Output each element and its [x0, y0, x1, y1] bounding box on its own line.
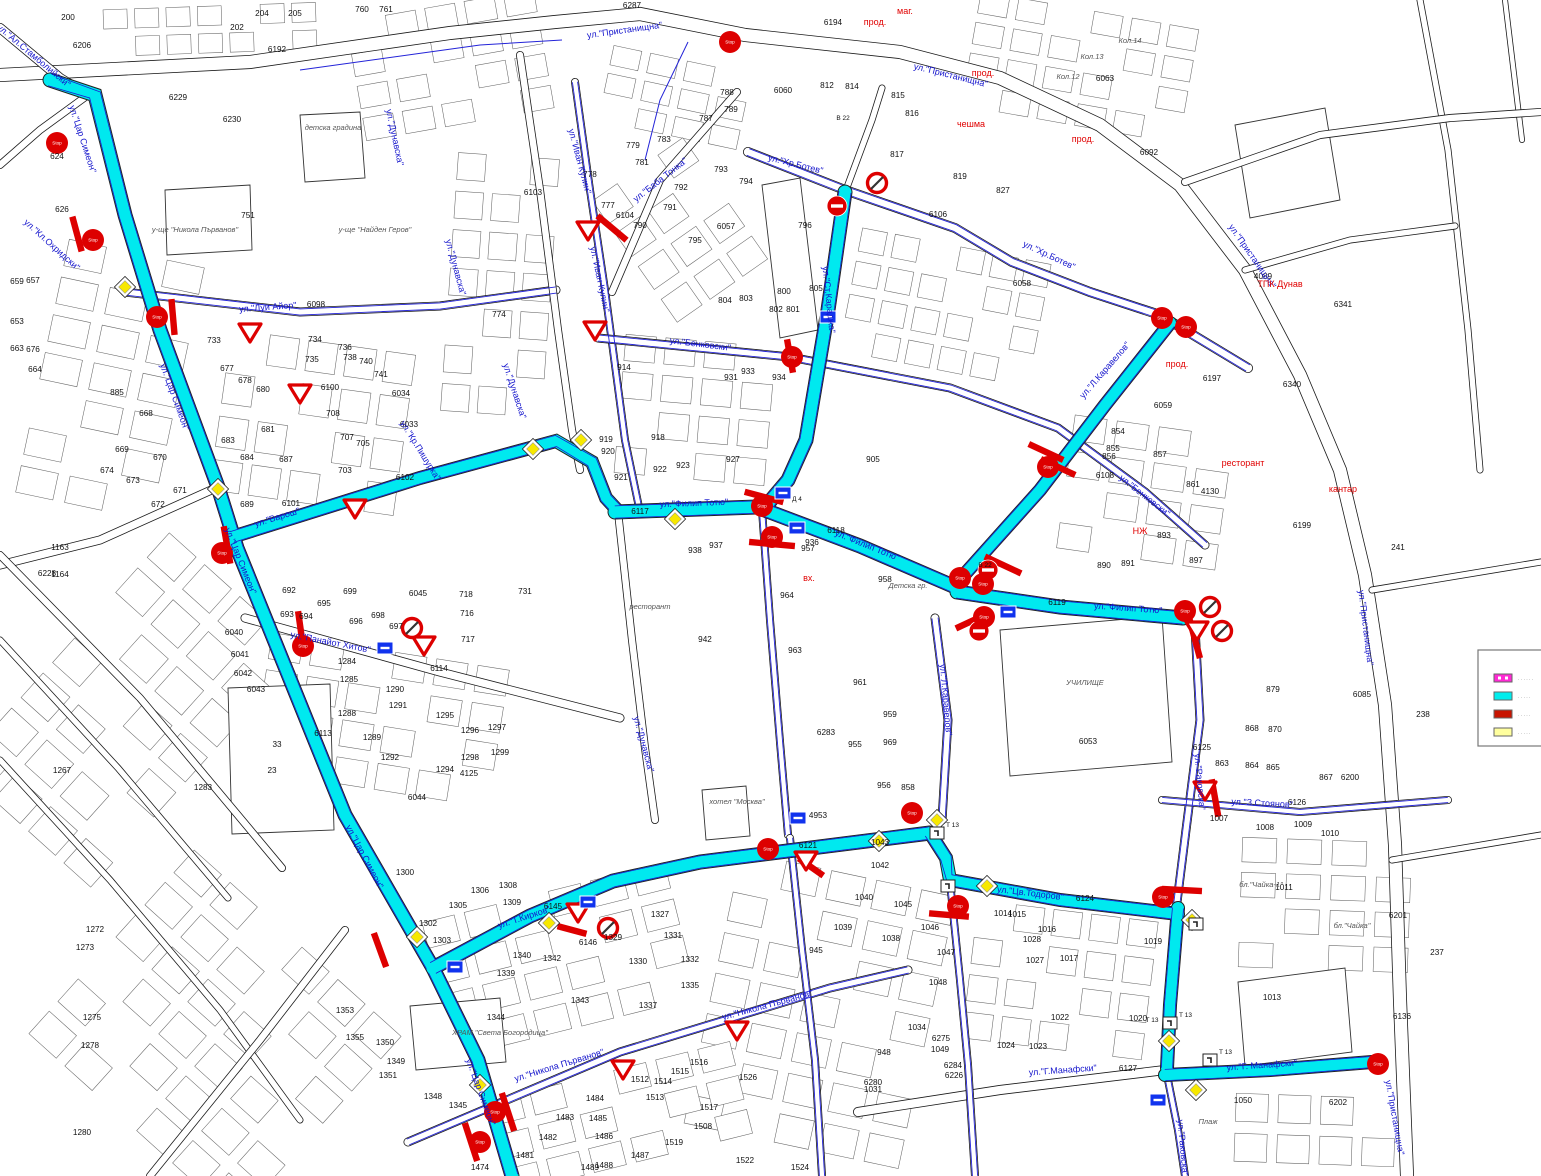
parcel-number: 777 [601, 201, 615, 210]
poi-label-red: ТПК Дунав [1257, 279, 1302, 289]
parcel-number: 1515 [671, 1067, 690, 1076]
parcel-number: 942 [698, 635, 712, 644]
parcel-number: 934 [772, 373, 786, 382]
parcel-number: 6106 [929, 210, 948, 219]
parcel-outline [1155, 86, 1187, 113]
parcel-outline [1151, 463, 1187, 493]
parcel-outline [396, 74, 430, 102]
parcel-number: 6230 [223, 115, 242, 124]
legend-item-label: · · · · · · [1518, 677, 1533, 682]
info-sign-glyph [793, 527, 802, 529]
parcel-number: 1524 [791, 1163, 810, 1172]
parcel-number: 927 [726, 455, 740, 464]
stop-sign-text: Stop [152, 315, 162, 320]
poi-label-gray: ресторант [628, 602, 670, 611]
parcel-outline [454, 191, 484, 220]
parcel-number: 4953 [809, 811, 828, 820]
parcel-number: 1027 [1026, 956, 1045, 965]
parcel-number: 241 [1391, 543, 1405, 552]
poi-label-red: прод. [972, 68, 994, 78]
parcel-number: 1289 [363, 733, 382, 742]
parcel-number: 6127 [1119, 1064, 1138, 1073]
parcel-outline [441, 383, 471, 412]
parcel-number: 1045 [894, 900, 913, 909]
parcel-number: 814 [845, 82, 859, 91]
parcel-number: 787 [699, 114, 713, 123]
sign-code-label: Д 4 [792, 496, 802, 503]
parcel-outline [337, 389, 371, 423]
parcel-number: 1290 [386, 685, 405, 694]
parcel-number: 1485 [589, 1114, 608, 1123]
parcel-number: 1297 [488, 723, 507, 732]
parcel-number: 914 [617, 363, 631, 372]
parcel-number: 202 [230, 23, 244, 32]
parcel-number: 663 [10, 344, 24, 353]
parcel-number: 921 [614, 473, 628, 482]
parcel-outline [357, 81, 391, 109]
parcel-number: 4125 [460, 769, 479, 778]
parcel-outline [1284, 909, 1319, 935]
poi-label-red: прод. [864, 17, 886, 27]
parcel-number: 707 [340, 433, 354, 442]
parcel-number: 1300 [396, 868, 415, 877]
parcel-number: 693 [280, 610, 294, 619]
info-sign-glyph [451, 966, 460, 968]
parcel-number: 905 [866, 455, 880, 464]
parcel-number: 920 [601, 447, 615, 456]
parcel-number: 698 [371, 611, 385, 620]
parcel-outline [442, 99, 476, 127]
parcel-outline [103, 9, 128, 29]
stop-sign-text: Stop [217, 551, 227, 556]
parcel-number: 781 [635, 158, 649, 167]
parcel-outline [1004, 979, 1036, 1009]
parcel-number: 692 [282, 586, 296, 595]
parcel-number: 1016 [1038, 925, 1057, 934]
parcel-number: 6284 [944, 1061, 963, 1070]
parcel-number: 802 [769, 305, 783, 314]
parcel-number: 6202 [1329, 1098, 1348, 1107]
parcel-number: 6108 [1096, 471, 1115, 480]
parcel-number: 937 [709, 541, 723, 550]
parcel-number: 1517 [700, 1103, 719, 1112]
parcel-outline [1057, 523, 1093, 553]
poi-label-gray: у-ще "Найден Геров" [338, 225, 412, 234]
parcel-number: 963 [788, 646, 802, 655]
parcel-number: 885 [110, 388, 124, 397]
parcel-number: 1331 [664, 931, 683, 940]
parcel-number: 6119 [1048, 598, 1066, 607]
parcel-number: 1344 [487, 1013, 506, 1022]
parcel-number: 890 [1097, 561, 1111, 570]
parcel-number: 669 [115, 445, 129, 454]
parcel-outline [971, 937, 1003, 967]
sign-code-label: В 22 [836, 115, 850, 122]
legend-item-label: · · · · · [1518, 695, 1531, 700]
parcel-number: 6280 [864, 1078, 883, 1087]
parcel-number: 1299 [491, 748, 510, 757]
parcel-number: 1486 [595, 1132, 614, 1141]
parcel-number: 6044 [408, 793, 427, 802]
parcel-outline [852, 261, 881, 289]
parcel-number: 1343 [571, 996, 590, 1005]
stop-sign-text: Stop [757, 504, 767, 509]
parcel-outline [943, 313, 972, 341]
parcel-number: 794 [739, 177, 753, 186]
parcel-number: 6275 [932, 1034, 951, 1043]
parcel-outline [167, 34, 192, 54]
parcel-number: 856 [1102, 452, 1116, 461]
poi-label-red: кантар [1329, 484, 1357, 494]
bus-stop-sign-icon [930, 827, 944, 839]
stop-sign-text: Stop [953, 904, 963, 909]
parcel-number: 6206 [73, 41, 92, 50]
poi-label-gray: Кол.12 [1056, 72, 1080, 81]
parcel-number: 1484 [586, 1094, 605, 1103]
parcel-number: 6057 [717, 222, 736, 231]
stop-sign-text: Stop [1157, 316, 1167, 321]
parcel-number: 959 [883, 710, 897, 719]
parcel-number: 716 [460, 609, 474, 618]
parcel-number: 734 [308, 335, 322, 344]
parcel-outline [370, 438, 404, 472]
parcel-number: 1519 [665, 1138, 684, 1147]
building-outline [1238, 968, 1352, 1066]
parcel-number: 659 [10, 277, 24, 286]
parcel-number: 1329 [604, 933, 623, 942]
parcel-number: 6058 [1013, 279, 1032, 288]
parcel-number: 697 [389, 622, 403, 631]
parcel-number: 1283 [194, 783, 213, 792]
parcel-number: 6199 [1293, 521, 1312, 530]
parcel-number: 1483 [556, 1113, 575, 1122]
poi-label-red: НЖ [1133, 526, 1148, 536]
parcel-number: 919 [599, 435, 613, 444]
parcel-outline [1089, 914, 1121, 944]
parcel-outline [1161, 55, 1193, 82]
poi-label-gray: УЧИЛИЩЕ [1065, 678, 1105, 687]
parcel-number: 681 [261, 425, 275, 434]
parcel-outline [1079, 988, 1111, 1018]
parcel-number: 1303 [433, 936, 452, 945]
parcel-number: 1047 [937, 948, 956, 957]
parcel-number: 815 [891, 91, 905, 100]
legend-swatch-dash [1498, 677, 1501, 680]
legend-swatch [1494, 674, 1512, 682]
parcel-number: 791 [663, 203, 677, 212]
parcel-number: 1306 [471, 886, 490, 895]
parcel-outline [1278, 1095, 1311, 1124]
parcel-number: 1337 [639, 1001, 658, 1010]
poi-label-gray: Плаж [1199, 1117, 1219, 1126]
parcel-number: 1013 [1263, 993, 1282, 1002]
parcel-number: 1294 [436, 765, 455, 774]
parcel-number: 854 [1111, 427, 1125, 436]
legend-swatch [1494, 692, 1512, 700]
parcel-number: 717 [461, 635, 475, 644]
parcel-number: 708 [326, 409, 340, 418]
parcel-number: 803 [739, 294, 753, 303]
bus-stop-sign-icon [1163, 1017, 1177, 1029]
parcel-number: 1163 [51, 543, 69, 552]
parcel-outline [197, 6, 222, 26]
parcel-number: 1019 [1144, 937, 1163, 946]
parcel-number: 626 [55, 205, 69, 214]
parcel-outline [1009, 326, 1038, 354]
parcel-number: 1038 [882, 934, 901, 943]
parcel-number: 699 [343, 587, 357, 596]
parcel-number: 1042 [871, 861, 890, 870]
parcel-number: 718 [459, 590, 473, 599]
parcel-number: 1487 [631, 1151, 650, 1160]
legend-item-label: · · · · · [1518, 731, 1531, 736]
parcel-number: 1481 [516, 1151, 535, 1160]
poi-label-red: прод. [1072, 134, 1094, 144]
parcel-outline [1328, 945, 1363, 971]
parcel-number: 1327 [651, 910, 670, 919]
parcel-outline [1166, 25, 1198, 52]
parcel-number: 1342 [543, 954, 562, 963]
parcel-number: 680 [256, 385, 270, 394]
parcel-number: 1508 [694, 1122, 713, 1131]
parcel-number: 955 [848, 740, 862, 749]
stop-sign-text: Stop [907, 811, 917, 816]
parcel-number: 1522 [736, 1156, 755, 1165]
parcel-number: 1008 [1256, 823, 1275, 832]
parcel-outline [134, 8, 159, 28]
sign-code-label: Т 13 [1179, 1012, 1192, 1019]
parcel-number: 684 [240, 453, 254, 462]
parcel-number: 933 [741, 367, 755, 376]
parcel-number: 827 [996, 186, 1010, 195]
parcel-number: 1516 [690, 1058, 709, 1067]
parcel-outline [884, 267, 913, 295]
stop-sign-text: Stop [787, 355, 797, 360]
parcel-number: 731 [518, 587, 532, 596]
sign-code-label: В 22 [978, 562, 992, 569]
poi-label-gray: хотел "Москва" [708, 797, 765, 806]
parcel-number: 741 [374, 370, 388, 379]
legend-swatch-dash [1505, 677, 1508, 680]
no-entry-bar [973, 629, 985, 632]
parcel-number: 868 [1245, 724, 1259, 733]
parcel-number: 790 [633, 221, 647, 230]
parcel-outline [972, 22, 1004, 49]
parcel-number: 6104 [616, 211, 635, 220]
parcel-outline [1287, 839, 1322, 865]
parcel-outline [858, 228, 887, 256]
parcel-number: 795 [688, 236, 702, 245]
parcel-outline [248, 465, 282, 499]
parcel-number: 1335 [681, 981, 700, 990]
parcel-number: 1007 [1210, 814, 1229, 823]
parcel-outline [660, 375, 693, 404]
legend-item-label: · · · · · [1518, 713, 1531, 718]
legend-swatch [1494, 728, 1512, 736]
stop-sign-text: Stop [1373, 1062, 1383, 1067]
parcel-outline [697, 416, 730, 445]
parcel-number: 891 [1121, 559, 1135, 568]
poi-label-gray: ХРАМ "Света Богородица" [451, 1028, 548, 1037]
parcel-number: 735 [305, 355, 319, 364]
stop-sign-text: Stop [1181, 325, 1191, 330]
parcel-number: 694 [299, 612, 313, 621]
parcel-number: 867 [1319, 773, 1333, 782]
parcel-number: 695 [317, 599, 331, 608]
parcel-number: 863 [1215, 759, 1229, 768]
parcel-number: 760 [355, 5, 369, 14]
parcel-number: 6226 [945, 1071, 964, 1080]
parcel-outline [1319, 1136, 1352, 1165]
parcel-number: 783 [657, 135, 671, 144]
poi-label-gray: Кол.14 [1118, 36, 1141, 45]
parcel-number: 6092 [1140, 148, 1159, 157]
parcel-number: 6059 [1154, 401, 1173, 410]
parcel-number: 33 [272, 740, 282, 749]
parcel-number: 705 [356, 439, 370, 448]
bus-stop-sign-icon [1203, 1054, 1217, 1066]
parcel-outline [700, 379, 733, 408]
parcel-number: 1295 [436, 711, 455, 720]
parcel-number: 653 [10, 317, 24, 326]
parcel-number: 1278 [81, 1041, 100, 1050]
parcel-outline [198, 33, 223, 53]
parcel-number: 858 [901, 783, 915, 792]
parcel-number: 1309 [503, 898, 522, 907]
parcel-outline [374, 763, 409, 794]
parcel-number: 1272 [86, 925, 105, 934]
parcel-number: 1513 [646, 1093, 665, 1102]
parcel-number: 861 [1186, 480, 1200, 489]
parcel-number: 657 [26, 276, 40, 285]
parcel-number: 1345 [449, 1101, 468, 1110]
poi-label-gray: Детска гр. [887, 581, 927, 590]
parcel-number: 879 [1266, 685, 1280, 694]
parcel-number: 1514 [654, 1077, 673, 1086]
parcel-outline [477, 386, 507, 415]
parcel-number: 6201 [1389, 911, 1408, 920]
parcel-outline [1361, 1138, 1394, 1167]
parcel-number: 683 [221, 436, 235, 445]
parcel-outline [845, 294, 874, 322]
parcel-outline [475, 60, 509, 88]
parcel-number: 671 [173, 486, 187, 495]
parcel-number: 1351 [379, 1071, 398, 1080]
parcel-number: 238 [1416, 710, 1430, 719]
parcel-number: 6113 [314, 729, 332, 738]
parcel-outline [516, 350, 546, 379]
bus-stop-sign-icon [941, 880, 955, 892]
parcel-outline [457, 153, 487, 182]
parcel-number: 6103 [524, 188, 543, 197]
parcel-number: 6125 [1193, 743, 1212, 752]
parcel-number: 1489 [581, 1163, 600, 1172]
legend: · · · · · ·· · · · ·· · · · ·· · · · · [1478, 650, 1541, 746]
parcel-number: 801 [786, 305, 800, 314]
building-outline [702, 786, 750, 840]
parcel-outline [135, 35, 160, 55]
parcel-outline [488, 232, 518, 261]
parcel-number: 812 [820, 81, 834, 90]
info-sign-glyph [381, 647, 390, 649]
parcel-number: 6197 [1203, 374, 1222, 383]
parcel-outline [266, 335, 300, 369]
parcel-number: 864 [1245, 761, 1259, 770]
parcel-number: 1474 [471, 1163, 490, 1172]
parcel-number: 792 [674, 183, 688, 192]
parcel-number: 1284 [338, 657, 357, 666]
parcel-number: 1302 [419, 919, 438, 928]
parcel-number: 6040 [225, 628, 244, 637]
parcel-number: 1330 [629, 957, 648, 966]
parcel-number: 957 [801, 544, 815, 553]
parcel-number: 6200 [1341, 773, 1360, 782]
parcel-number: 674 [100, 466, 114, 475]
parcel-number: 945 [809, 946, 823, 955]
building-outline [1000, 616, 1172, 776]
parcel-number: 870 [1268, 725, 1282, 734]
parcel-number: 6136 [1393, 1012, 1412, 1021]
city-map-canvas[interactable]: Т 13Т 13Т 13StopStopStopStopStopStopStop… [0, 0, 1541, 1176]
parcel-number: 6229 [169, 93, 188, 102]
poi-label-red: маг. [897, 6, 913, 16]
parcel-number: 670 [153, 453, 167, 462]
parcel-number: 931 [724, 373, 738, 382]
stop-sign-text: Stop [978, 582, 988, 587]
parcel-outline [519, 312, 549, 341]
poi-label-red: чешма [957, 119, 985, 129]
parcel-number: 6117 [631, 507, 649, 516]
parcel-outline [917, 274, 946, 302]
parcel-number: 689 [240, 500, 254, 509]
parcel-outline [878, 301, 907, 329]
parcel-outline [1123, 49, 1155, 76]
poi-label-gray: у-ще "Никола Първанов" [151, 225, 239, 234]
parcel-outline [956, 247, 985, 275]
parcel-number: 938 [688, 546, 702, 555]
parcel-number: 1353 [336, 1006, 355, 1015]
parcel-number: 964 [780, 591, 794, 600]
parcel-number: 1526 [739, 1073, 758, 1082]
poi-label-gray: Кол.13 [1080, 52, 1104, 61]
legend-swatch [1494, 710, 1512, 718]
poi-label-red: вх. [803, 573, 815, 583]
poi-label-red: прод. [1166, 359, 1188, 369]
stop-sign-text: Stop [52, 141, 62, 146]
parcel-outline [904, 340, 933, 368]
parcel-number: 1512 [631, 1075, 650, 1084]
parcel-number: 969 [883, 738, 897, 747]
parcel-number: 1039 [834, 923, 853, 932]
stop-sign-text: Stop [767, 535, 777, 540]
parcel-number: 740 [359, 357, 373, 366]
parcel-number: 1482 [539, 1133, 558, 1142]
parcel-outline [1331, 875, 1366, 901]
parcel-number: 1285 [340, 675, 359, 684]
parcel-number: 6043 [247, 685, 266, 694]
parcel-number: 204 [255, 9, 269, 18]
bus-stop-sign-icon [1189, 918, 1203, 930]
parcel-outline [737, 420, 770, 449]
parcel-number: 6146 [579, 938, 598, 947]
parcel-number: 1273 [76, 943, 95, 952]
parcel-number: 672 [151, 500, 165, 509]
parcel-number: 687 [279, 455, 293, 464]
parcel-number: 6100 [321, 383, 340, 392]
parcel-outline [1122, 956, 1154, 986]
parcel-number: 1043 [871, 838, 890, 847]
parcel-number: 6340 [1283, 380, 1302, 389]
